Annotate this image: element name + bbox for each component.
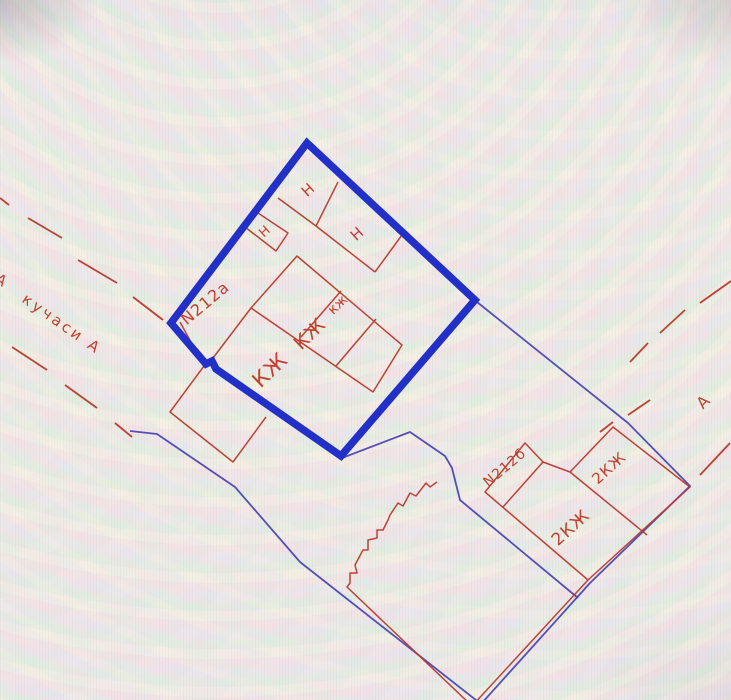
building-outline [375,235,402,272]
cadastral-plan-canvas: НННN212аКЖКЖкжN212б2КЖ2КЖкучаси ААА [0,0,731,700]
plan-label: Н [298,180,318,201]
street-boundary-dash [65,385,97,408]
street-boundary-dash [630,343,648,362]
street-boundary-dash [0,198,9,205]
plan-label: кж [325,292,352,318]
building-outline [347,482,588,700]
plan-label: 2КЖ [548,506,594,550]
street-boundary-dash [660,310,685,333]
plan-label: Н [347,224,367,245]
screen-photo: НННN212аКЖКЖкжN212б2КЖ2КЖкучаси ААА [0,0,731,700]
plan-label: КЖ [247,348,292,393]
plan-label: кучаси А [19,290,106,358]
street-boundary-dash [115,423,132,437]
building-outline [336,319,376,366]
street-boundary-dash [133,297,163,320]
street-boundary-dash [12,347,47,370]
street-boundary-dash [700,281,731,303]
plan-label: КЖ [289,314,330,355]
parcel-boundary-line [130,431,481,700]
building-outline [213,308,251,358]
plan-label: А [692,391,713,412]
plan-label: 2КЖ [588,448,629,488]
parcel-boundary-line [342,432,578,598]
street-boundary-dash [600,422,613,432]
street-boundary-dash [28,218,62,238]
street-boundary-dash [78,260,117,283]
plan-label: А [0,270,11,291]
building-outline [316,182,338,226]
plan-label: N212б [480,446,529,491]
street-boundary-dash [628,400,650,415]
street-boundary-dash [700,443,730,475]
